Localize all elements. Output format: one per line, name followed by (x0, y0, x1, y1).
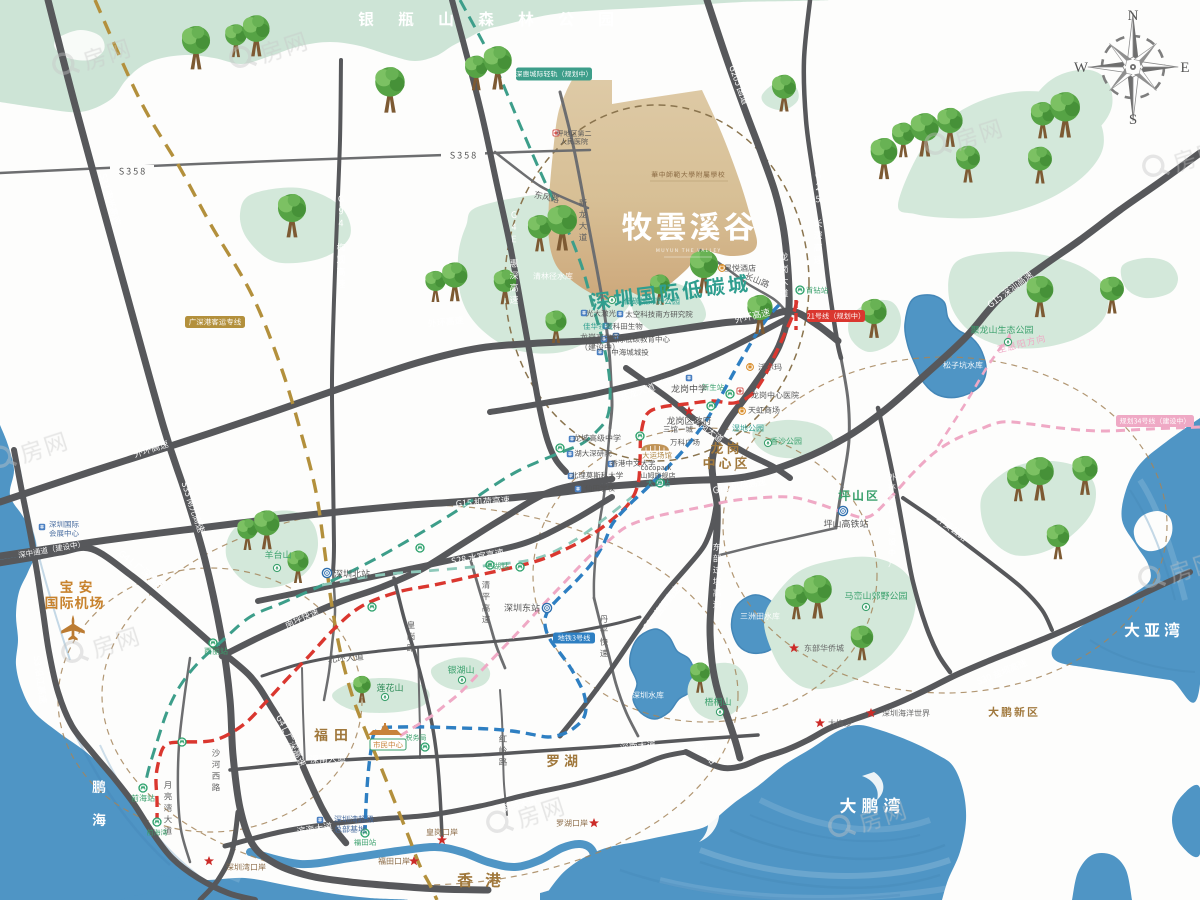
svg-text:W: W (1074, 60, 1089, 76)
svg-text:S: S (1129, 112, 1137, 128)
svg-text:E: E (1180, 60, 1189, 76)
svg-text:N: N (1128, 8, 1139, 24)
